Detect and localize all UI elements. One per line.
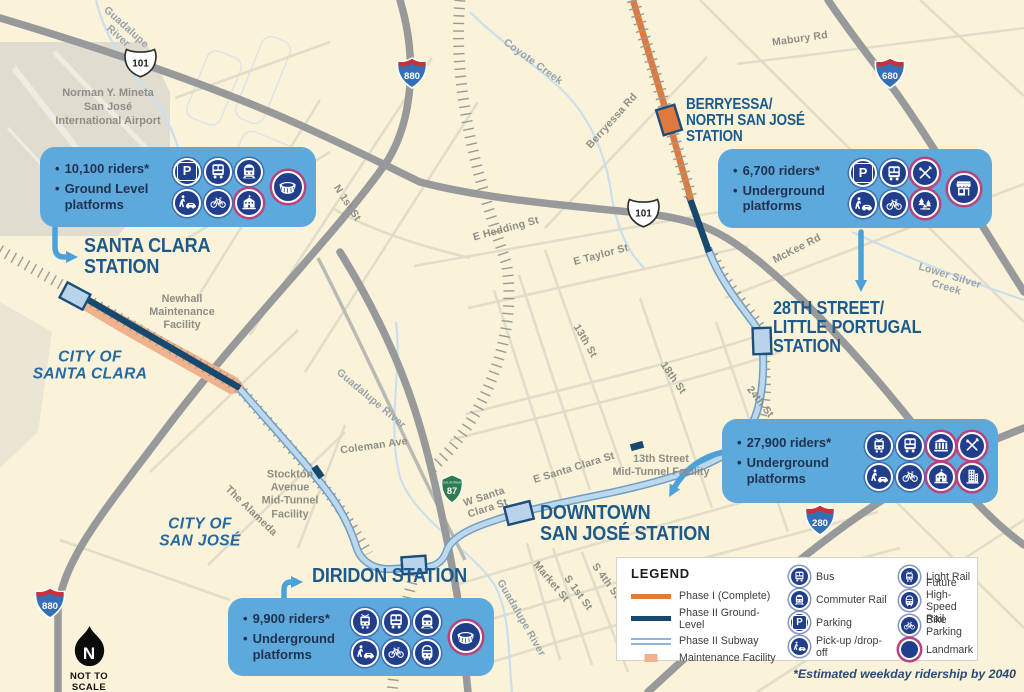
station-label-28th-street-little-portugal: 28TH STREET/ LITTLE PORTUGAL STATION xyxy=(773,299,921,356)
route-shield-ca-87: CALIFORNIA87 xyxy=(438,474,466,504)
station-label-santa-clara: SANTA CLARA STATION xyxy=(84,236,210,278)
bus-icon xyxy=(382,608,410,636)
bullet-dot: • xyxy=(733,183,738,215)
commuter-rail-icon xyxy=(235,158,263,186)
bus-icon xyxy=(789,566,810,587)
route-shield-i-880: 880 xyxy=(396,56,428,90)
pickup-dropoff-icon xyxy=(351,639,379,667)
parking-icon: P xyxy=(789,612,810,633)
landmark-icon xyxy=(899,639,920,660)
station-label-diridon: DIRIDON STATION xyxy=(312,566,467,587)
transit-map: Norman Y. Mineta San José International … xyxy=(0,0,1024,692)
stadium-icon xyxy=(272,171,304,203)
callout-bullets: •6,700 riders*•Underground platforms xyxy=(733,163,841,215)
svg-text:880: 880 xyxy=(404,71,420,82)
commuter-rail-icon xyxy=(789,589,810,610)
bullet-dot: • xyxy=(737,435,742,451)
svg-text:680: 680 xyxy=(882,71,898,82)
svg-text:101: 101 xyxy=(132,58,149,69)
svg-text:101: 101 xyxy=(635,208,652,219)
legend: LEGEND Phase I (Complete)Phase II Ground… xyxy=(616,557,978,661)
legend-line-label: Phase I (Complete) xyxy=(679,590,770,602)
facility-label-stockton: Stockton Avenue Mid-Tunnel Facility xyxy=(262,469,319,522)
bike-parking-icon xyxy=(382,639,410,667)
school-icon xyxy=(235,189,263,217)
facility-label-newhall: Newhall Maintenance Facility xyxy=(149,293,214,333)
light-rail-icon xyxy=(899,566,920,587)
legend-line-label: Phase II Subway xyxy=(679,635,759,647)
compass-letter: N xyxy=(53,644,125,664)
callout-bullet-text: Underground platforms xyxy=(743,183,841,215)
light-rail-icon xyxy=(351,608,379,636)
route-shield-i-680: 680 xyxy=(874,56,906,90)
station-label-berryessa-north-san-jose: BERRYESSA/ NORTH SAN JOSÉ STATION xyxy=(686,97,805,144)
high-speed-rail-icon xyxy=(899,590,920,611)
bike-parking-icon xyxy=(899,615,920,636)
storefront-icon xyxy=(948,173,980,205)
dining-icon xyxy=(958,432,986,460)
school-icon xyxy=(927,463,955,491)
pickup-dropoff-icon xyxy=(849,190,877,218)
route-shield-i-880: 880 xyxy=(34,586,66,620)
svg-text:880: 880 xyxy=(42,601,58,612)
parking-icon: P xyxy=(849,159,877,187)
city-label-san-jose: CITY OF SAN JOSÉ xyxy=(159,516,241,551)
bullet-dot: • xyxy=(243,631,248,663)
pickup-dropoff-icon xyxy=(865,463,893,491)
callout-bullet-text: 10,100 riders* xyxy=(65,161,150,177)
legend-icon-item: Pick-up /drop-off xyxy=(789,635,891,658)
legend-line-item: Phase II Ground-Level xyxy=(631,607,781,631)
pickup-dropoff-icon xyxy=(789,636,810,657)
legend-line-label: Phase II Ground-Level xyxy=(679,607,781,631)
legend-title: LEGEND xyxy=(631,566,781,581)
legend-line-item: Maintenance Facility xyxy=(631,652,781,664)
bike-parking-icon xyxy=(880,190,908,218)
legend-swatch-phase1 xyxy=(631,594,671,599)
callout-bullets: •9,900 riders*•Underground platforms xyxy=(243,611,343,663)
callout-bullet-text: 6,700 riders* xyxy=(743,163,820,179)
callout-bullets: •10,100 riders*•Ground Level platforms xyxy=(55,161,165,213)
legend-icon-item: Future High-Speed Rail xyxy=(899,589,973,612)
bike-parking-icon xyxy=(204,189,232,217)
callout-icon-grid: P xyxy=(173,158,263,217)
callout-bullets: •27,900 riders*•Underground platforms xyxy=(737,435,857,487)
stadium-icon xyxy=(450,621,482,653)
svg-text:280: 280 xyxy=(812,518,828,529)
facility-label-13th-street: 13th Street Mid-Tunnel Facility xyxy=(613,453,710,479)
bullet-dot: • xyxy=(737,455,742,487)
legend-icon-item: Bike Parking xyxy=(899,614,973,637)
legend-icon-item: Landmark xyxy=(899,639,973,660)
callout-icon-grid: P xyxy=(849,159,939,218)
callout-icon-grid xyxy=(865,432,986,491)
bus-icon xyxy=(204,158,232,186)
legend-icon-label: Bike Parking xyxy=(926,614,973,638)
svg-text:87: 87 xyxy=(447,486,457,496)
callout-downtown-san-jose: •27,900 riders*•Underground platforms xyxy=(722,419,998,503)
legend-icon-item: PParking xyxy=(789,612,891,633)
callout-bullet-text: Ground Level platforms xyxy=(65,181,165,213)
callout-bullet-text: Underground platforms xyxy=(253,631,343,663)
callout-28th-street-little-portugal: •6,700 riders*•Underground platformsP xyxy=(718,149,992,228)
pickup-dropoff-icon xyxy=(173,189,201,217)
bike-parking-icon xyxy=(896,463,924,491)
station-label-downtown-san-jose: DOWNTOWN SAN JOSÉ STATION xyxy=(540,503,710,545)
airport-label: Norman Y. Mineta San José International … xyxy=(55,86,160,128)
legend-swatch-phase2-ground xyxy=(631,616,671,621)
bank-icon xyxy=(927,432,955,460)
route-shield-us-101: 101 xyxy=(627,194,660,229)
callout-bullet-text: 9,900 riders* xyxy=(253,611,330,627)
legend-line-label: Maintenance Facility xyxy=(679,652,776,664)
bullet-dot: • xyxy=(55,181,60,213)
legend-swatch-phase2-subway xyxy=(631,638,671,645)
legend-icon-item: Commuter Rail xyxy=(789,589,891,610)
callout-icon-grid xyxy=(351,608,441,667)
legend-icon-label: Commuter Rail xyxy=(816,594,887,606)
legend-icon-label: Parking xyxy=(816,617,852,629)
ridership-footnote: *Estimated weekday ridership by 2040 xyxy=(793,667,1016,681)
city-label-santa-clara: CITY OF SANTA CLARA xyxy=(33,349,148,384)
callout-bullet-text: 27,900 riders* xyxy=(747,435,832,451)
bus-icon xyxy=(896,432,924,460)
not-to-scale-label: NOT TO SCALE xyxy=(53,671,125,692)
legend-icon-label: Pick-up /drop-off xyxy=(816,635,891,659)
legend-icon-label: Bus xyxy=(816,571,834,583)
parking-icon: P xyxy=(173,158,201,186)
tower-icon xyxy=(958,463,986,491)
commuter-rail-icon xyxy=(413,608,441,636)
bullet-dot: • xyxy=(55,161,60,177)
high-speed-rail-icon xyxy=(413,639,441,667)
callout-santa-clara: •10,100 riders*•Ground Level platformsP xyxy=(40,147,316,227)
legend-icon-item: Bus xyxy=(789,566,891,587)
legend-line-item: Phase II Subway xyxy=(631,635,781,647)
compass-north-arrow: N NOT TO SCALE xyxy=(53,624,125,692)
callout-bullet-text: Underground platforms xyxy=(747,455,857,487)
bullet-dot: • xyxy=(733,163,738,179)
dining-icon xyxy=(911,159,939,187)
route-shield-us-101: 101 xyxy=(124,44,157,79)
station-marker-28th-street xyxy=(753,328,772,355)
route-shield-i-280: 280 xyxy=(804,503,836,537)
bus-icon xyxy=(880,159,908,187)
legend-line-item: Phase I (Complete) xyxy=(631,590,781,602)
legend-swatch-maintenance xyxy=(631,654,671,662)
svg-text:CALIFORNIA: CALIFORNIA xyxy=(443,480,461,484)
callout-diridon: •9,900 riders*•Underground platforms xyxy=(228,598,494,676)
parks-icon xyxy=(911,190,939,218)
light-rail-icon xyxy=(865,432,893,460)
legend-icon-label: Landmark xyxy=(926,644,973,656)
bullet-dot: • xyxy=(243,611,248,627)
